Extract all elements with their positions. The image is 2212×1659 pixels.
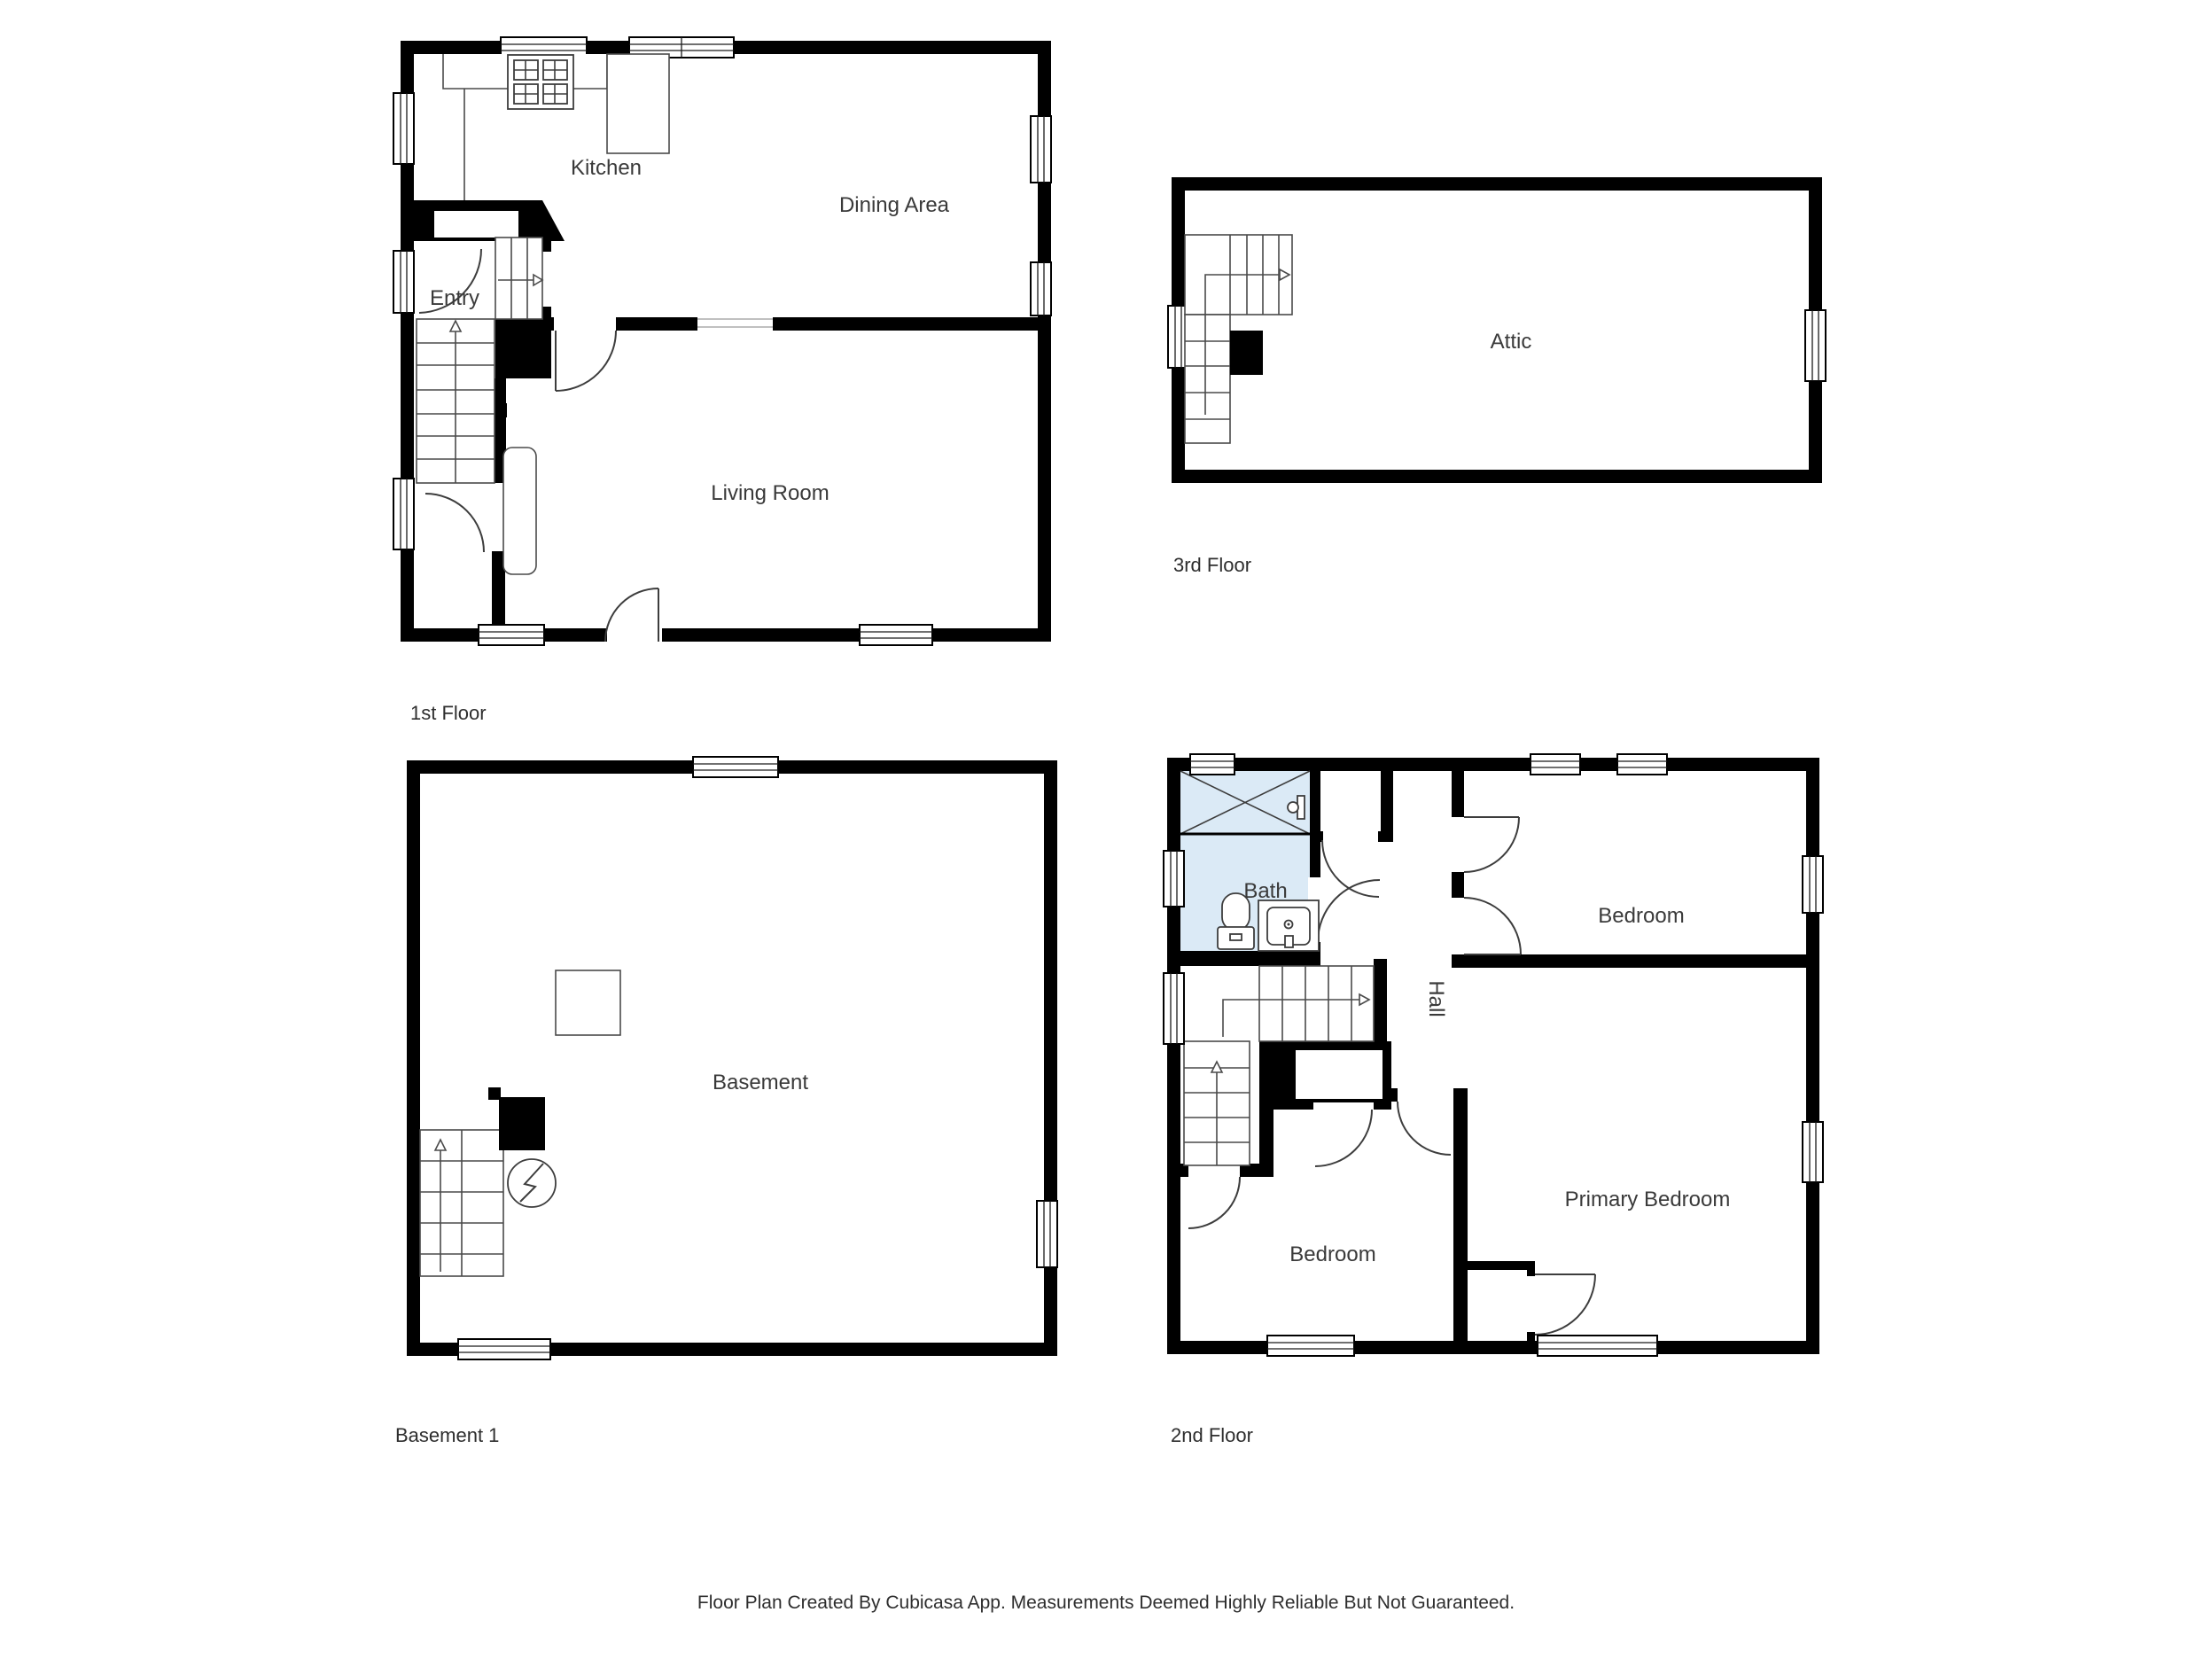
window-icon <box>693 757 778 777</box>
chimney-icon <box>499 1097 545 1150</box>
second-floor-plan: Bath Hall Bedroom Primary Bedroom Bedroo… <box>1164 754 1823 1446</box>
floor-label-3rd-floor: 3rd Floor <box>1173 554 1251 576</box>
entry-side-steps <box>495 238 542 319</box>
window-icon <box>1164 851 1184 907</box>
main-staircase <box>417 319 495 483</box>
room-label-attic: Attic <box>1491 330 1532 354</box>
window-icon <box>393 479 414 549</box>
window-icon <box>1538 1336 1657 1356</box>
room-label-dining-area: Dining Area <box>839 193 950 217</box>
basement-plan: Basement Basement 1 <box>395 757 1057 1446</box>
window-icon <box>1805 310 1826 381</box>
basement-walls <box>407 760 1057 1356</box>
window-icon <box>1267 1336 1354 1356</box>
footer-disclaimer: Floor Plan Created By Cubicasa App. Meas… <box>697 1593 1515 1613</box>
room-label-hall: Hall <box>1424 980 1448 1016</box>
room-label-bath: Bath <box>1243 879 1287 903</box>
room-label-living-room: Living Room <box>711 481 829 505</box>
window-icon <box>860 625 932 645</box>
cabinet-block <box>607 54 669 153</box>
window-icon <box>1031 262 1051 315</box>
floor-plan-canvas: Kitchen Dining Area Entry Living Room 1s… <box>0 0 2212 1659</box>
room-label-entry: Entry <box>430 286 479 310</box>
window-icon <box>1190 754 1235 775</box>
window-icon <box>1803 1122 1823 1182</box>
furnace-icon <box>556 970 620 1035</box>
stove-icon <box>508 55 573 109</box>
window-icon <box>479 625 544 645</box>
water-heater-icon <box>508 1159 556 1207</box>
furniture-sofa <box>503 448 536 574</box>
room-label-basement: Basement <box>713 1071 808 1094</box>
window-icon <box>393 251 414 313</box>
chimney-icon <box>1230 331 1263 375</box>
window-icon <box>1617 754 1667 775</box>
window-icon <box>1037 1201 1057 1267</box>
window-icon <box>458 1339 550 1359</box>
room-label-bedroom: Bedroom <box>1598 904 1684 928</box>
sink-vanity-icon <box>1258 900 1319 951</box>
third-floor-plan: Attic 3rd Floor <box>1168 177 1826 576</box>
room-label-kitchen: Kitchen <box>571 156 642 180</box>
second-floor-walls <box>1167 758 1819 1354</box>
first-floor-walls <box>401 41 1051 642</box>
room-label-primary-bedroom: Primary Bedroom <box>1565 1188 1731 1211</box>
window-icon <box>1031 116 1051 183</box>
floor-label-basement-1: Basement 1 <box>395 1424 499 1446</box>
window-icon <box>393 93 414 164</box>
basement-stairs <box>420 1130 503 1276</box>
floor-label-2nd-floor: 2nd Floor <box>1171 1424 1253 1446</box>
floor-label-1st-floor: 1st Floor <box>410 702 487 724</box>
first-floor-plan: Kitchen Dining Area Entry Living Room 1s… <box>393 37 1051 724</box>
window-icon <box>1164 973 1184 1044</box>
room-label-bedroom-2: Bedroom <box>1289 1242 1375 1266</box>
window-icon <box>1803 856 1823 913</box>
window-icon <box>1530 754 1580 775</box>
